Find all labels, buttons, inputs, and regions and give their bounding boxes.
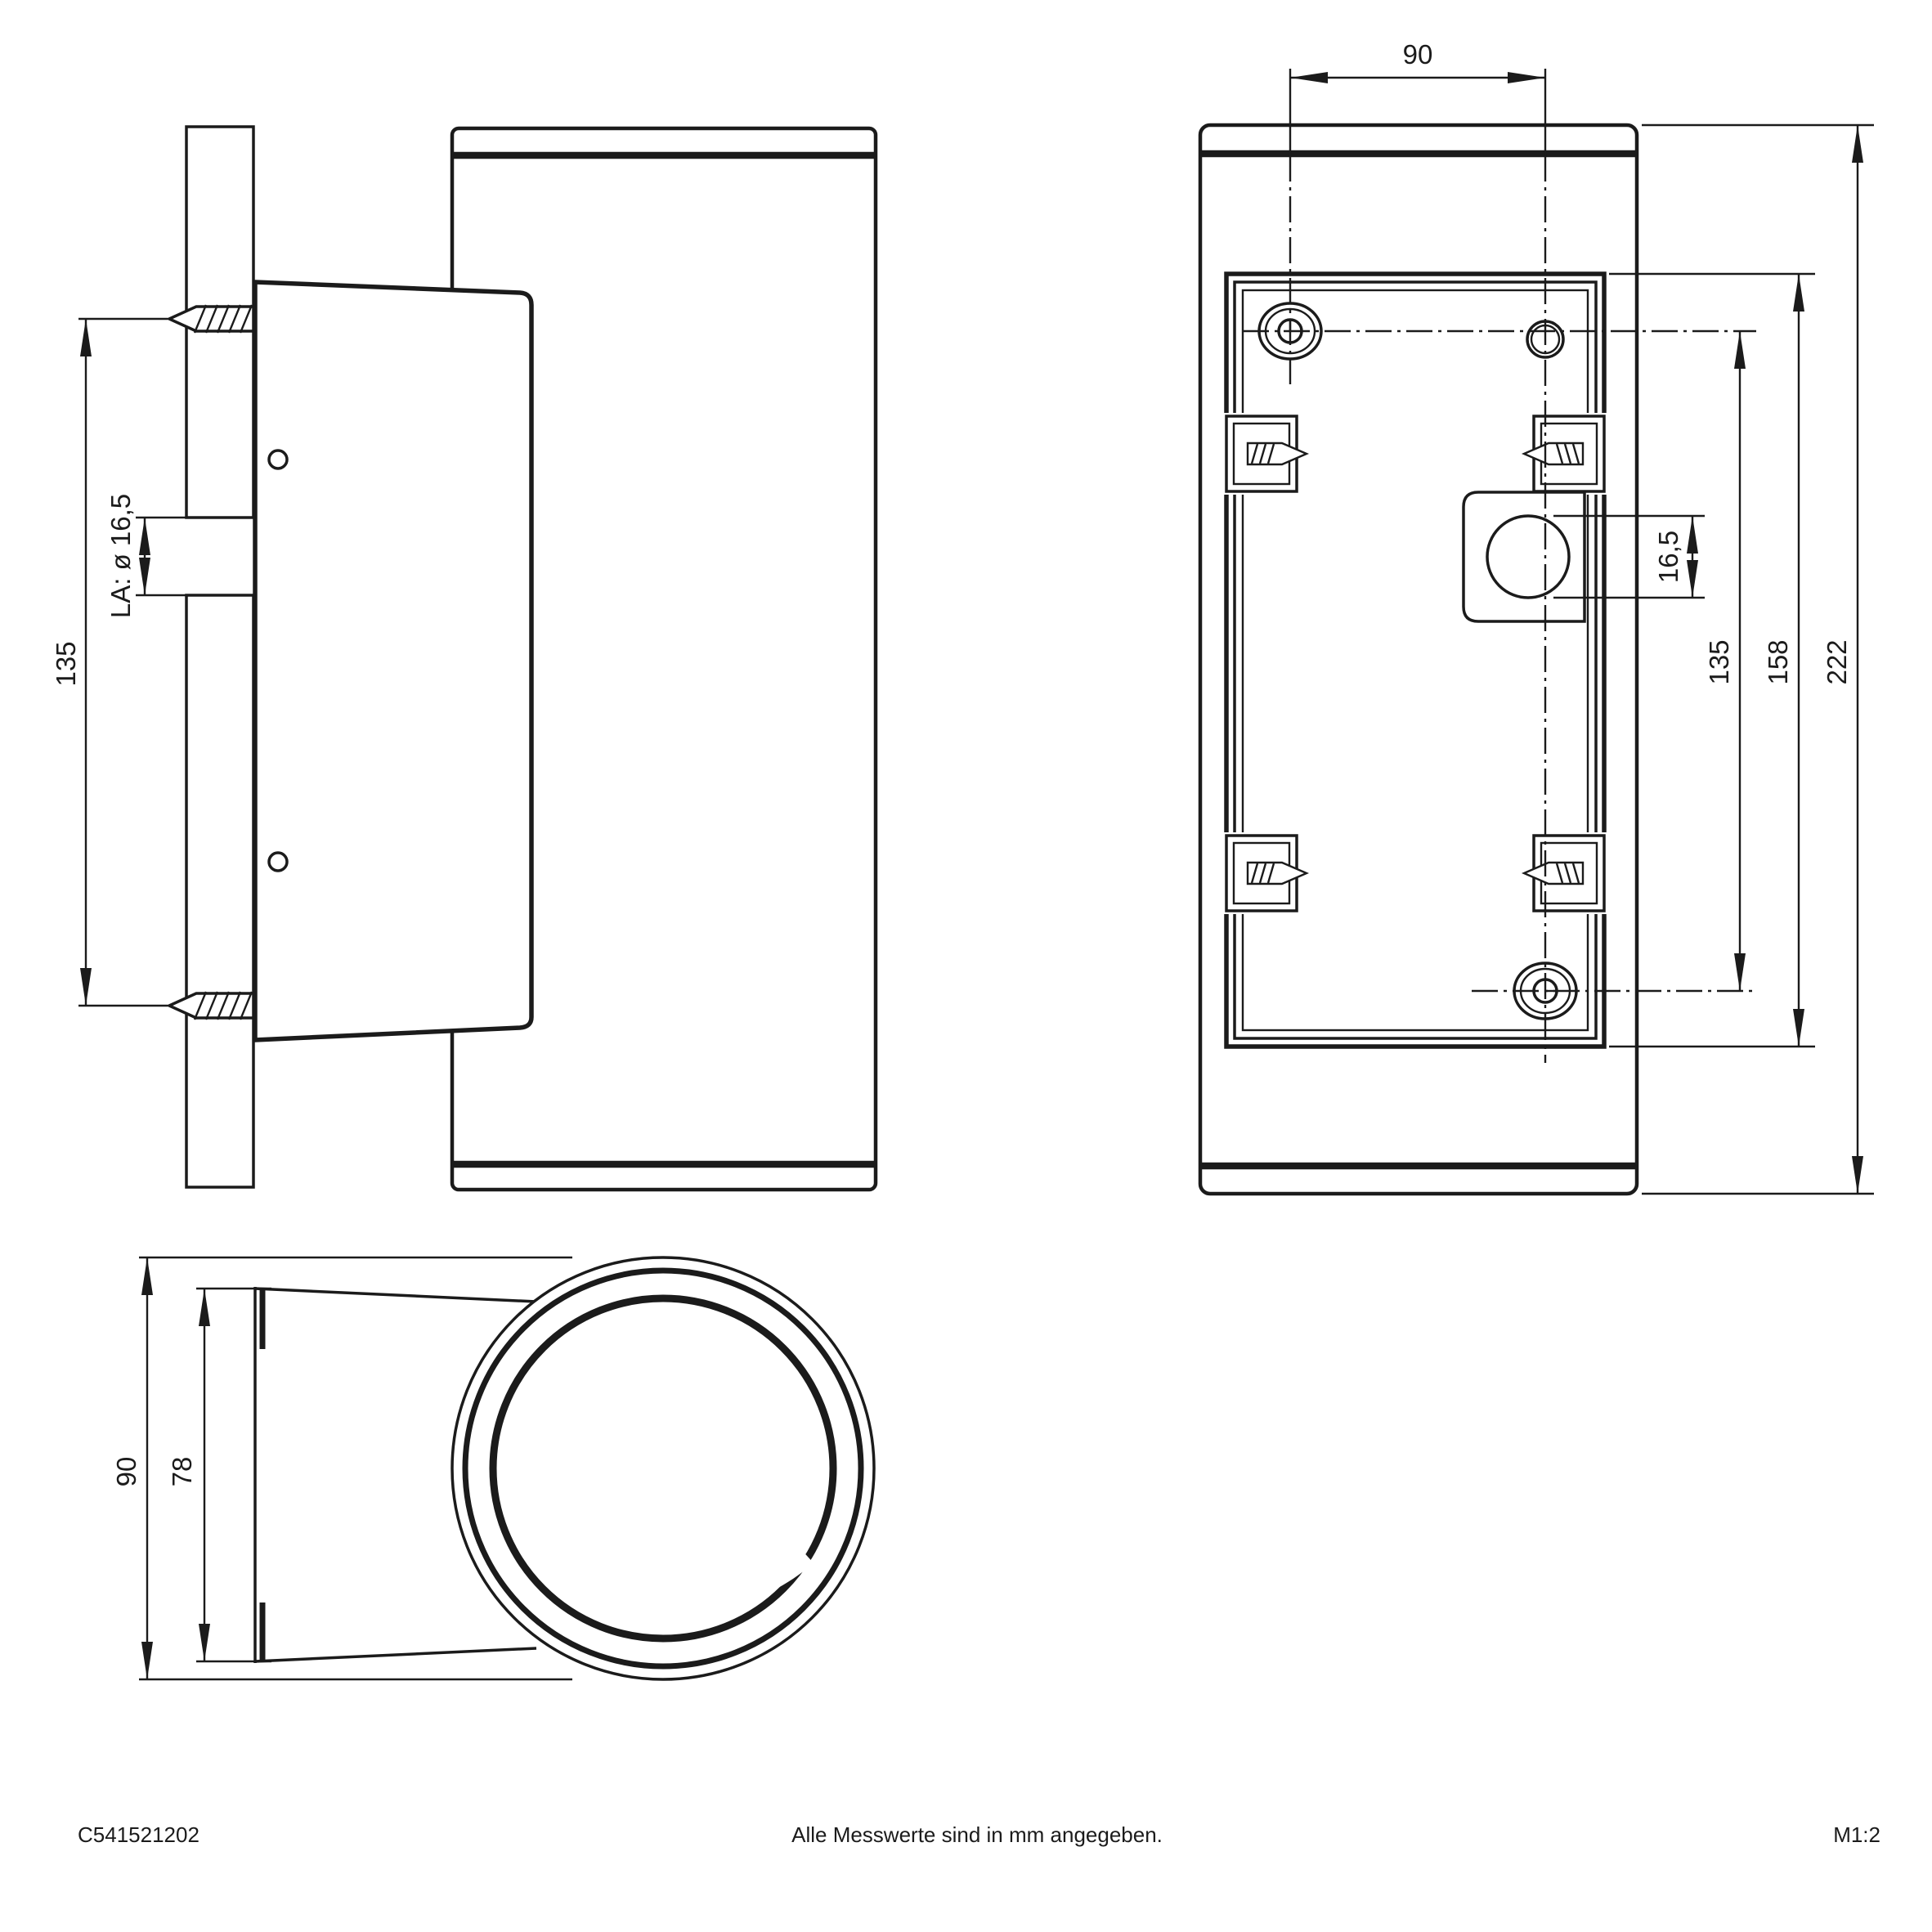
housing-rear <box>1200 125 1637 1194</box>
wall-section <box>186 127 253 1187</box>
title-block: C541521202 Alle Messwerte sind in mm ang… <box>78 1822 1880 1847</box>
cable-entry-hole <box>1464 492 1585 621</box>
dim-label-16-5-rear: 16,5 <box>1653 531 1683 583</box>
clip-bottom-left <box>1222 832 1307 914</box>
dim-label-90-top: 90 <box>111 1457 141 1487</box>
dim-cable-hole-side: LA: ø 16,5 <box>105 494 190 618</box>
side-view: 135 LA: ø 16,5 <box>51 127 876 1190</box>
dim-hole-spacing-side: 135 <box>51 319 168 1006</box>
dim-hole-spacing-horizontal: 90 <box>1290 39 1545 78</box>
dim-hole-spacing-vertical: 135 <box>1704 331 1740 991</box>
dim-label-222-rear: 222 <box>1822 639 1852 684</box>
drawing-sheet: 135 LA: ø 16,5 <box>0 0 1932 1932</box>
mounting-plate-rear <box>1226 274 1604 1047</box>
dim-label-158-rear: 158 <box>1763 639 1793 684</box>
measurement-note: Alle Messwerte sind in mm angegeben. <box>791 1822 1163 1847</box>
dim-label-90-rear: 90 <box>1403 39 1433 69</box>
top-view: 90 78 <box>111 1257 874 1679</box>
dim-label-cable-hole-side: LA: ø 16,5 <box>105 494 136 618</box>
lens-assembly <box>452 1257 874 1679</box>
technical-drawing: 135 LA: ø 16,5 <box>0 0 1932 1932</box>
dim-label-135-rear: 135 <box>1704 639 1734 684</box>
rear-view: 90 16,5 135 158 222 <box>1200 39 1874 1194</box>
mounting-screw-bottom-icon <box>169 992 253 1020</box>
dim-label-78-top: 78 <box>167 1457 197 1487</box>
dim-label-135-side: 135 <box>51 641 81 686</box>
scale-label: M1:2 <box>1833 1822 1880 1847</box>
mounting-screw-top-icon <box>169 305 253 333</box>
clip-bottom-right <box>1524 832 1609 914</box>
dim-total-height: 222 <box>1642 125 1874 1194</box>
clip-top-right <box>1524 413 1609 495</box>
article-number: C541521202 <box>78 1822 199 1847</box>
clip-top-left <box>1222 413 1307 495</box>
mounting-plate-side <box>255 282 531 1040</box>
